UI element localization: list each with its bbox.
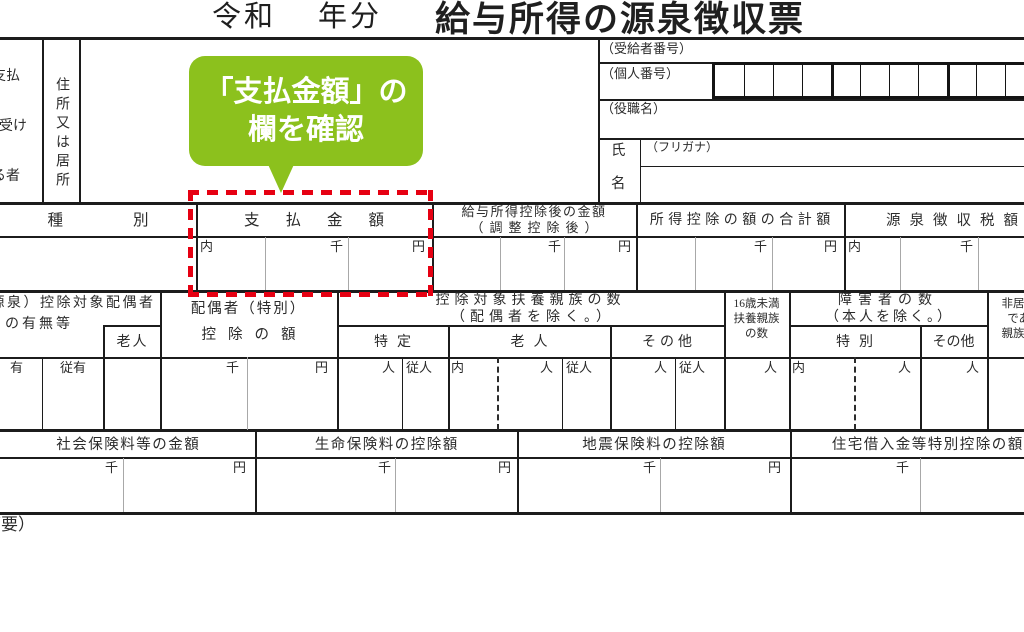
spouse-presence-label: （源泉）控除対象配偶者 — [0, 296, 156, 312]
unit-nin: 人 — [382, 361, 395, 376]
header-social-insurance: 社会保険料等の金額 — [0, 430, 255, 457]
number-box — [976, 65, 1005, 96]
number-box — [860, 65, 889, 96]
payer-label-line: 支払 — [0, 52, 20, 102]
header-housing-loan: 住宅借入金等特別控除の額 — [790, 430, 1024, 457]
cell-divider — [564, 237, 565, 290]
number-box — [918, 65, 947, 96]
furigana-label: （フリガナ） — [646, 141, 718, 155]
subheader-tokutei: 特定 — [337, 325, 448, 357]
border-line — [79, 37, 81, 203]
unit-uchi: 内 — [848, 240, 861, 255]
spouse-presence-label2: の有無等 — [5, 317, 73, 333]
cell-divider — [247, 357, 248, 430]
payment-amount-highlight — [188, 190, 433, 297]
cell-divider — [772, 237, 773, 290]
callout-text-line2: 欄を確認 — [248, 111, 364, 149]
border-line — [562, 357, 563, 430]
role-label: （役職名） — [601, 102, 666, 117]
elderly-subheader: 老人 — [103, 325, 160, 357]
unit-uchi: 内 — [451, 361, 464, 376]
payer-label: 支払 を受け る者 — [0, 52, 38, 192]
unit-sen: 千 — [105, 461, 118, 476]
unit-nin: 人 — [764, 361, 777, 376]
dependents-header: 控除対象扶養親族の数 （配偶者を除く。） — [337, 293, 724, 325]
number-box — [889, 65, 918, 96]
cell-divider — [900, 237, 901, 290]
unit-nin: 人 — [966, 361, 979, 376]
highlight-edge — [188, 292, 433, 297]
header-income-deduction-total: 所得控除の額の合計額 — [636, 202, 844, 236]
unit-junin: 従人 — [679, 361, 705, 376]
highlight-edge — [188, 190, 433, 195]
callout-text-line1: 「支払金額」の — [204, 73, 407, 111]
unit-nin: 人 — [898, 361, 911, 376]
number-box — [1005, 65, 1024, 96]
header-after-deduction: 給与所得控除後の金額 （調整控除後） — [432, 204, 636, 236]
border-line — [402, 357, 403, 430]
number-box — [773, 65, 802, 96]
unit-sen: 千 — [960, 240, 973, 255]
unit-en: 円 — [498, 461, 511, 476]
unit-sen: 千 — [896, 461, 909, 476]
unit-en: 円 — [768, 461, 781, 476]
number-box — [744, 65, 773, 96]
name-mei-label: 名 — [611, 176, 626, 193]
header-life-insurance: 生命保険料の控除額 — [255, 430, 517, 457]
unit-en: 円 — [824, 240, 837, 255]
subheader-tokubetsu: 特別 — [789, 325, 920, 357]
unit-junin: 従人 — [566, 361, 592, 376]
header-withholding-tax: 源泉徴収税額 — [844, 202, 1024, 236]
unit-uchi: 内 — [792, 361, 805, 376]
title-year-suffix: 年分 — [318, 0, 382, 35]
unit-junin: 従人 — [406, 361, 432, 376]
highlight-edge — [188, 190, 193, 297]
unit-sen: 千 — [754, 240, 767, 255]
number-box — [947, 65, 976, 96]
cell-divider — [978, 237, 979, 290]
cell-divider — [660, 458, 661, 512]
border-line — [0, 37, 1024, 40]
subheader-sonota2: その他 — [920, 325, 987, 357]
recipient-number-label: （受給者番号） — [601, 42, 692, 57]
border-line — [675, 357, 676, 430]
border-line — [640, 138, 641, 203]
header-type: 種別 — [0, 202, 196, 236]
number-box — [831, 65, 860, 96]
callout-bubble: 「支払金額」の 欄を確認 — [189, 56, 423, 166]
withholding-tax-slip-form: 令和 年分 給与所得の源泉徴収票 支払 を受け る者 住所又は居所 （受給者番号… — [0, 0, 1024, 632]
border-line — [42, 357, 43, 430]
highlight-edge — [428, 190, 433, 297]
cell-divider — [695, 237, 696, 290]
individual-number-boxes — [712, 62, 1024, 99]
border-line — [0, 512, 1024, 515]
border-line — [640, 166, 1024, 167]
unit-yu: 有 — [10, 361, 23, 376]
border-line — [0, 357, 1024, 359]
dashed-divider — [854, 357, 856, 430]
address-label: 住所又は居所 — [51, 77, 71, 191]
unit-sen: 千 — [548, 240, 561, 255]
cell-divider — [123, 458, 124, 512]
number-box — [715, 65, 744, 96]
name-shi-label: 氏 — [611, 143, 626, 160]
individual-number-label: （個人番号） — [601, 67, 679, 82]
border-line — [0, 236, 1024, 238]
unit-en: 円 — [315, 361, 328, 376]
unit-nin: 人 — [540, 361, 553, 376]
unit-nin: 人 — [654, 361, 667, 376]
subheader-rojin: 老人 — [448, 325, 610, 357]
remarks-label: （摘要） — [0, 515, 35, 535]
under16-header: 16歳未満 扶養親族 の数 — [724, 297, 789, 345]
unit-sen: 千 — [643, 461, 656, 476]
title-era: 令和 — [212, 0, 276, 35]
border-line — [42, 37, 44, 203]
unit-juyu: 従有 — [60, 361, 86, 376]
payer-label-line: を受け — [0, 102, 27, 152]
cell-divider — [395, 458, 396, 512]
unit-sen: 千 — [378, 461, 391, 476]
cell-divider — [920, 458, 921, 512]
subheader-sonota: その他 — [610, 325, 724, 357]
header-earthquake-insurance: 地震保険料の控除額 — [517, 430, 790, 457]
payer-label-line: る者 — [0, 152, 20, 202]
dashed-divider — [497, 357, 499, 430]
nonresident-header: 非居住者 である 親族の数 — [987, 297, 1024, 345]
cell-divider — [500, 237, 501, 290]
unit-en: 円 — [618, 240, 631, 255]
page-title: 給与所得の源泉徴収票 — [435, 0, 805, 42]
disability-header: 障害者の数 （本人を除く。） — [789, 293, 987, 325]
unit-sen: 千 — [226, 361, 239, 376]
number-box — [802, 65, 831, 96]
border-line — [0, 457, 1024, 459]
unit-en: 円 — [233, 461, 246, 476]
spouse-deduction-header: 配偶者（特別） 控除の額 — [160, 296, 337, 352]
